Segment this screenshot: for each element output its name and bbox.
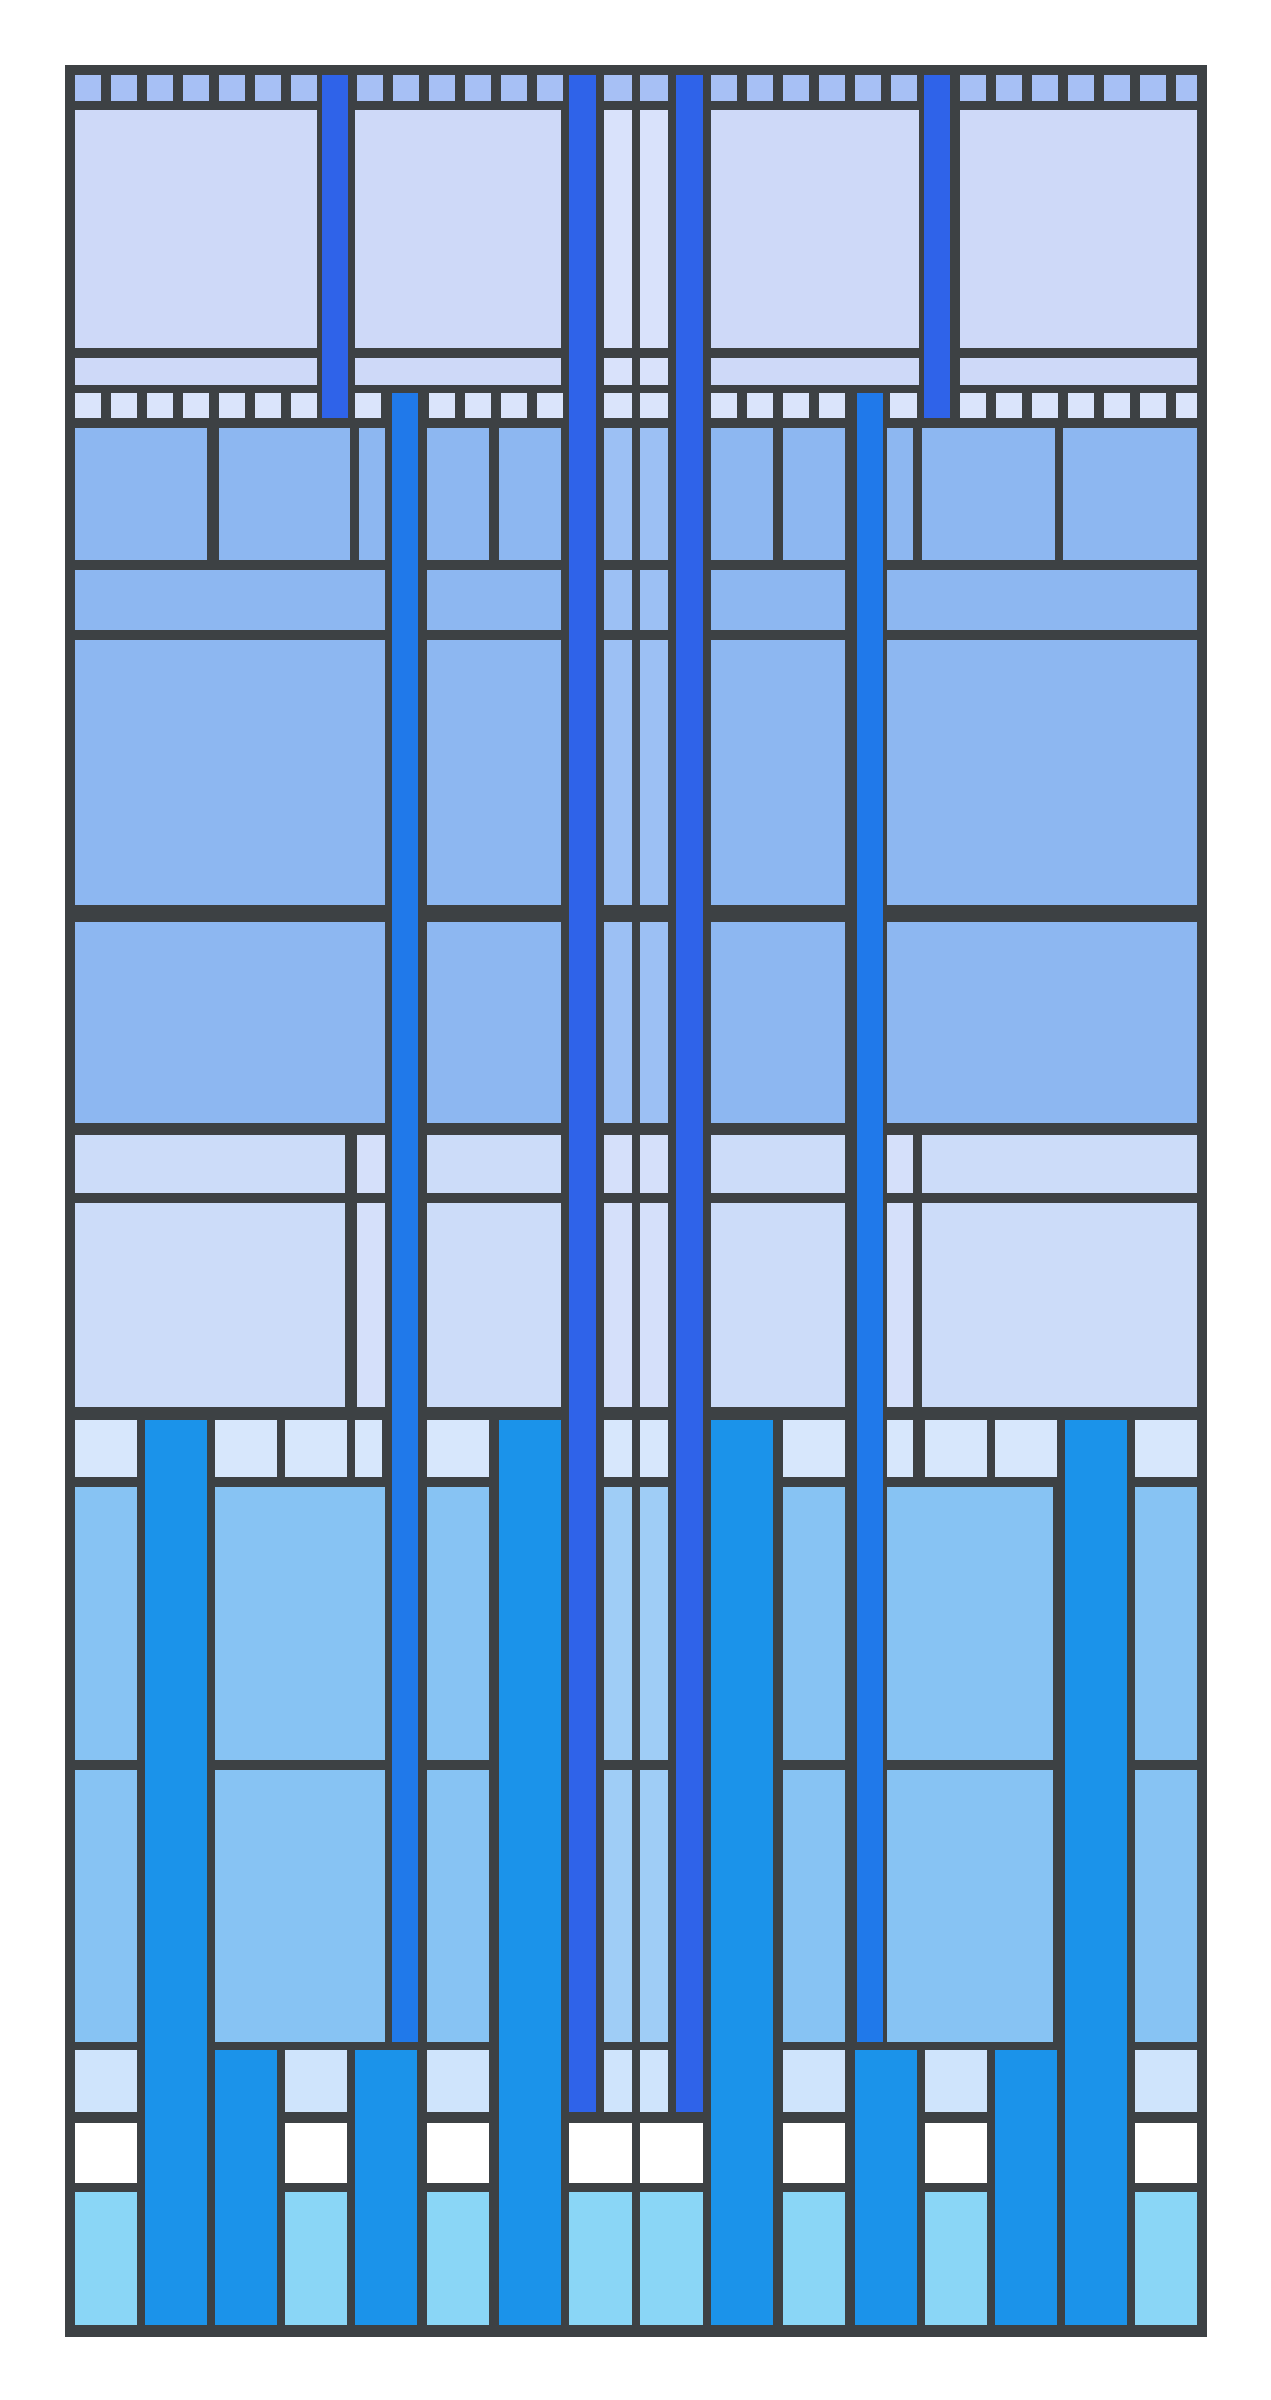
- glass-pane: [783, 2050, 845, 2112]
- glass-pane: [465, 393, 491, 418]
- glass-pane: [960, 393, 986, 418]
- glass-pane: [887, 922, 1197, 1123]
- glass-pane: [640, 570, 668, 630]
- glass-pane: [604, 1487, 632, 1760]
- glass-pane: [355, 110, 561, 348]
- glass-pane: [783, 1770, 845, 2042]
- glass-pane: [183, 75, 209, 101]
- glass-pane: [604, 922, 632, 1123]
- glass-pane: [1068, 75, 1094, 101]
- glass-pane: [819, 75, 845, 101]
- glass-pane: [925, 2123, 987, 2183]
- glass-pane: [640, 922, 668, 1123]
- glass-pane: [640, 428, 668, 560]
- glass-pane: [711, 358, 919, 385]
- glass-pane: [1135, 2050, 1197, 2112]
- glass-pane: [640, 1770, 668, 2042]
- glass-pane: [537, 393, 563, 418]
- glass-pane: [427, 1135, 561, 1193]
- glass-pane: [1135, 1420, 1197, 1477]
- glass-pane: [711, 110, 919, 348]
- glass-pane: [887, 1135, 913, 1193]
- glass-pane: [291, 393, 317, 418]
- glass-pane: [747, 75, 773, 101]
- glass-pane: [427, 640, 561, 905]
- glass-pane: [501, 75, 527, 101]
- glass-pane: [427, 428, 489, 560]
- glass-pane: [604, 1770, 632, 2042]
- glass-pane: [640, 1135, 668, 1193]
- glass-pane: [640, 2192, 703, 2325]
- glass-pane: [75, 393, 101, 418]
- glass-pane: [75, 358, 317, 385]
- glass-pane: [640, 1203, 668, 1407]
- glass-pane: [75, 1135, 345, 1193]
- glass-pane: [1140, 75, 1166, 101]
- glass-pane: [925, 2192, 987, 2325]
- glass-pane: [1140, 393, 1166, 418]
- glass-pane: [429, 393, 455, 418]
- glass-pane: [1135, 2192, 1197, 2325]
- glass-pane: [891, 75, 917, 101]
- royal-stripe-left-short: [322, 75, 348, 418]
- glass-pane: [355, 393, 381, 418]
- glass-pane: [711, 640, 845, 905]
- glass-pane: [355, 1420, 382, 1477]
- glass-pane: [1068, 393, 1094, 418]
- azure-column-2: [145, 1420, 207, 2325]
- royal-stripe-right-short: [924, 75, 950, 418]
- glass-pane: [604, 1203, 632, 1407]
- glass-pane: [183, 393, 209, 418]
- glass-pane: [783, 2123, 845, 2183]
- glass-pane: [75, 640, 385, 905]
- glass-pane: [711, 1203, 845, 1407]
- glass-pane: [922, 1203, 1197, 1407]
- glass-pane: [783, 75, 809, 101]
- glass-pane: [75, 2050, 137, 2112]
- glass-pane: [427, 1487, 489, 1760]
- glass-pane: [604, 358, 632, 385]
- glass-pane: [569, 2192, 632, 2325]
- glass-pane: [429, 75, 455, 101]
- azure-column-16: [995, 2050, 1057, 2325]
- glass-pane: [465, 75, 491, 101]
- glass-pane: [427, 1203, 561, 1407]
- glass-pane: [887, 570, 1197, 630]
- glass-pane: [1176, 75, 1197, 101]
- glass-pane: [960, 358, 1197, 385]
- glass-pane: [501, 393, 527, 418]
- glass-pane: [960, 110, 1197, 348]
- glass-pane: [1104, 393, 1130, 418]
- azure-column-5: [355, 2050, 417, 2325]
- glass-pane: [427, 2050, 489, 2112]
- glass-pane: [75, 1420, 137, 1477]
- glass-pane: [640, 75, 668, 101]
- glass-pane: [640, 640, 668, 905]
- glass-pane: [604, 640, 632, 905]
- glass-pane: [960, 75, 986, 101]
- glass-pane: [75, 570, 385, 630]
- glass-pane: [887, 1203, 913, 1407]
- glass-pane: [711, 428, 773, 560]
- glass-pane: [604, 393, 632, 418]
- glass-pane: [427, 1770, 489, 2042]
- azure-stripe-left: [392, 393, 418, 2042]
- glass-pane: [1135, 2123, 1197, 2183]
- glass-pane: [819, 393, 845, 418]
- glass-pane: [219, 428, 350, 560]
- glass-pane: [783, 393, 809, 418]
- glass-pane: [887, 1487, 1053, 1760]
- glass-pane: [922, 1135, 1197, 1193]
- glass-pane: [604, 75, 632, 101]
- azure-column-3: [215, 2050, 277, 2325]
- glass-pane: [215, 1770, 385, 2042]
- glass-pane: [75, 1203, 345, 1407]
- glass-pane: [783, 1487, 845, 1760]
- glass-pane: [215, 1487, 385, 1760]
- glass-pane: [783, 1420, 845, 1477]
- glass-pane: [427, 1420, 489, 1477]
- glass-pane: [887, 640, 1197, 905]
- glass-pane: [747, 393, 773, 418]
- glass-pane: [711, 393, 737, 418]
- glass-pane: [75, 2192, 137, 2325]
- glass-pane: [219, 75, 245, 101]
- glass-pane: [285, 2050, 347, 2112]
- glass-pane: [640, 110, 668, 348]
- glass-pane: [1135, 1770, 1197, 2042]
- glass-pane: [75, 1770, 137, 2042]
- glass-pane: [996, 75, 1022, 101]
- glass-pane: [711, 922, 845, 1123]
- glass-pane: [537, 75, 563, 101]
- glass-pane: [711, 75, 737, 101]
- azure-column-14: [855, 2050, 917, 2325]
- glass-pane: [1032, 393, 1058, 418]
- glass-pane: [604, 1135, 632, 1193]
- glass-pane: [604, 428, 632, 560]
- glass-pane: [604, 2050, 632, 2112]
- glass-pane: [783, 2192, 845, 2325]
- glass-pane: [75, 1487, 137, 1760]
- royal-stripe-center-left: [569, 75, 596, 2112]
- glass-pane: [359, 428, 385, 560]
- glass-pane: [215, 1420, 277, 1477]
- glass-pane: [995, 1420, 1057, 1477]
- glass-pane: [427, 2192, 489, 2325]
- glass-pane: [604, 110, 632, 348]
- glass-pane: [783, 428, 845, 560]
- glass-pane: [111, 393, 137, 418]
- glass-pane: [427, 922, 561, 1123]
- glass-pane: [922, 428, 1055, 560]
- glass-pane: [887, 1770, 1053, 2042]
- azure-stripe-right: [857, 393, 883, 2042]
- abstract-window-artwork: [0, 0, 1271, 2400]
- stained-glass-svg: [0, 0, 1271, 2400]
- glass-pane: [255, 393, 281, 418]
- glass-pane: [285, 2123, 347, 2183]
- glass-pane: [1032, 75, 1058, 101]
- azure-column-7: [499, 1420, 561, 2325]
- glass-pane: [75, 922, 385, 1123]
- glass-pane: [925, 2050, 987, 2112]
- glass-pane: [75, 2123, 137, 2183]
- royal-stripe-center-right: [676, 75, 703, 2112]
- glass-pane: [640, 358, 668, 385]
- glass-pane: [1176, 393, 1197, 418]
- glass-pane: [291, 75, 317, 101]
- glass-pane: [640, 393, 668, 418]
- glass-pane: [1135, 1487, 1197, 1760]
- glass-pane: [357, 1203, 385, 1407]
- glass-pane: [604, 1420, 632, 1477]
- glass-pane: [499, 428, 561, 560]
- glass-pane: [604, 570, 632, 630]
- glass-pane: [285, 2192, 347, 2325]
- glass-pane: [427, 570, 561, 630]
- glass-pane: [887, 1420, 913, 1477]
- azure-column-17: [1065, 1420, 1127, 2325]
- glass-pane: [393, 75, 419, 101]
- azure-column-12: [711, 1420, 773, 2325]
- glass-pane: [75, 75, 101, 101]
- glass-pane: [569, 2123, 632, 2183]
- glass-pane: [75, 428, 207, 560]
- glass-pane: [925, 1420, 987, 1477]
- glass-pane: [887, 428, 913, 560]
- glass-pane: [996, 393, 1022, 418]
- glass-pane: [640, 2123, 703, 2183]
- glass-pane: [640, 1420, 668, 1477]
- glass-pane: [285, 1420, 347, 1477]
- glass-pane: [640, 1487, 668, 1760]
- glass-pane: [427, 2123, 489, 2183]
- glass-pane: [255, 75, 281, 101]
- glass-pane: [219, 393, 245, 418]
- glass-pane: [640, 2050, 668, 2112]
- glass-pane: [890, 393, 917, 418]
- glass-pane: [355, 358, 561, 385]
- glass-pane: [357, 1135, 385, 1193]
- glass-pane: [711, 570, 845, 630]
- glass-pane: [147, 75, 173, 101]
- glass-pane: [111, 75, 137, 101]
- glass-pane: [711, 1135, 845, 1193]
- glass-pane: [1104, 75, 1130, 101]
- glass-pane: [147, 393, 173, 418]
- glass-pane: [357, 75, 383, 101]
- glass-pane: [75, 110, 317, 348]
- glass-pane: [1063, 428, 1197, 560]
- glass-pane: [855, 75, 881, 101]
